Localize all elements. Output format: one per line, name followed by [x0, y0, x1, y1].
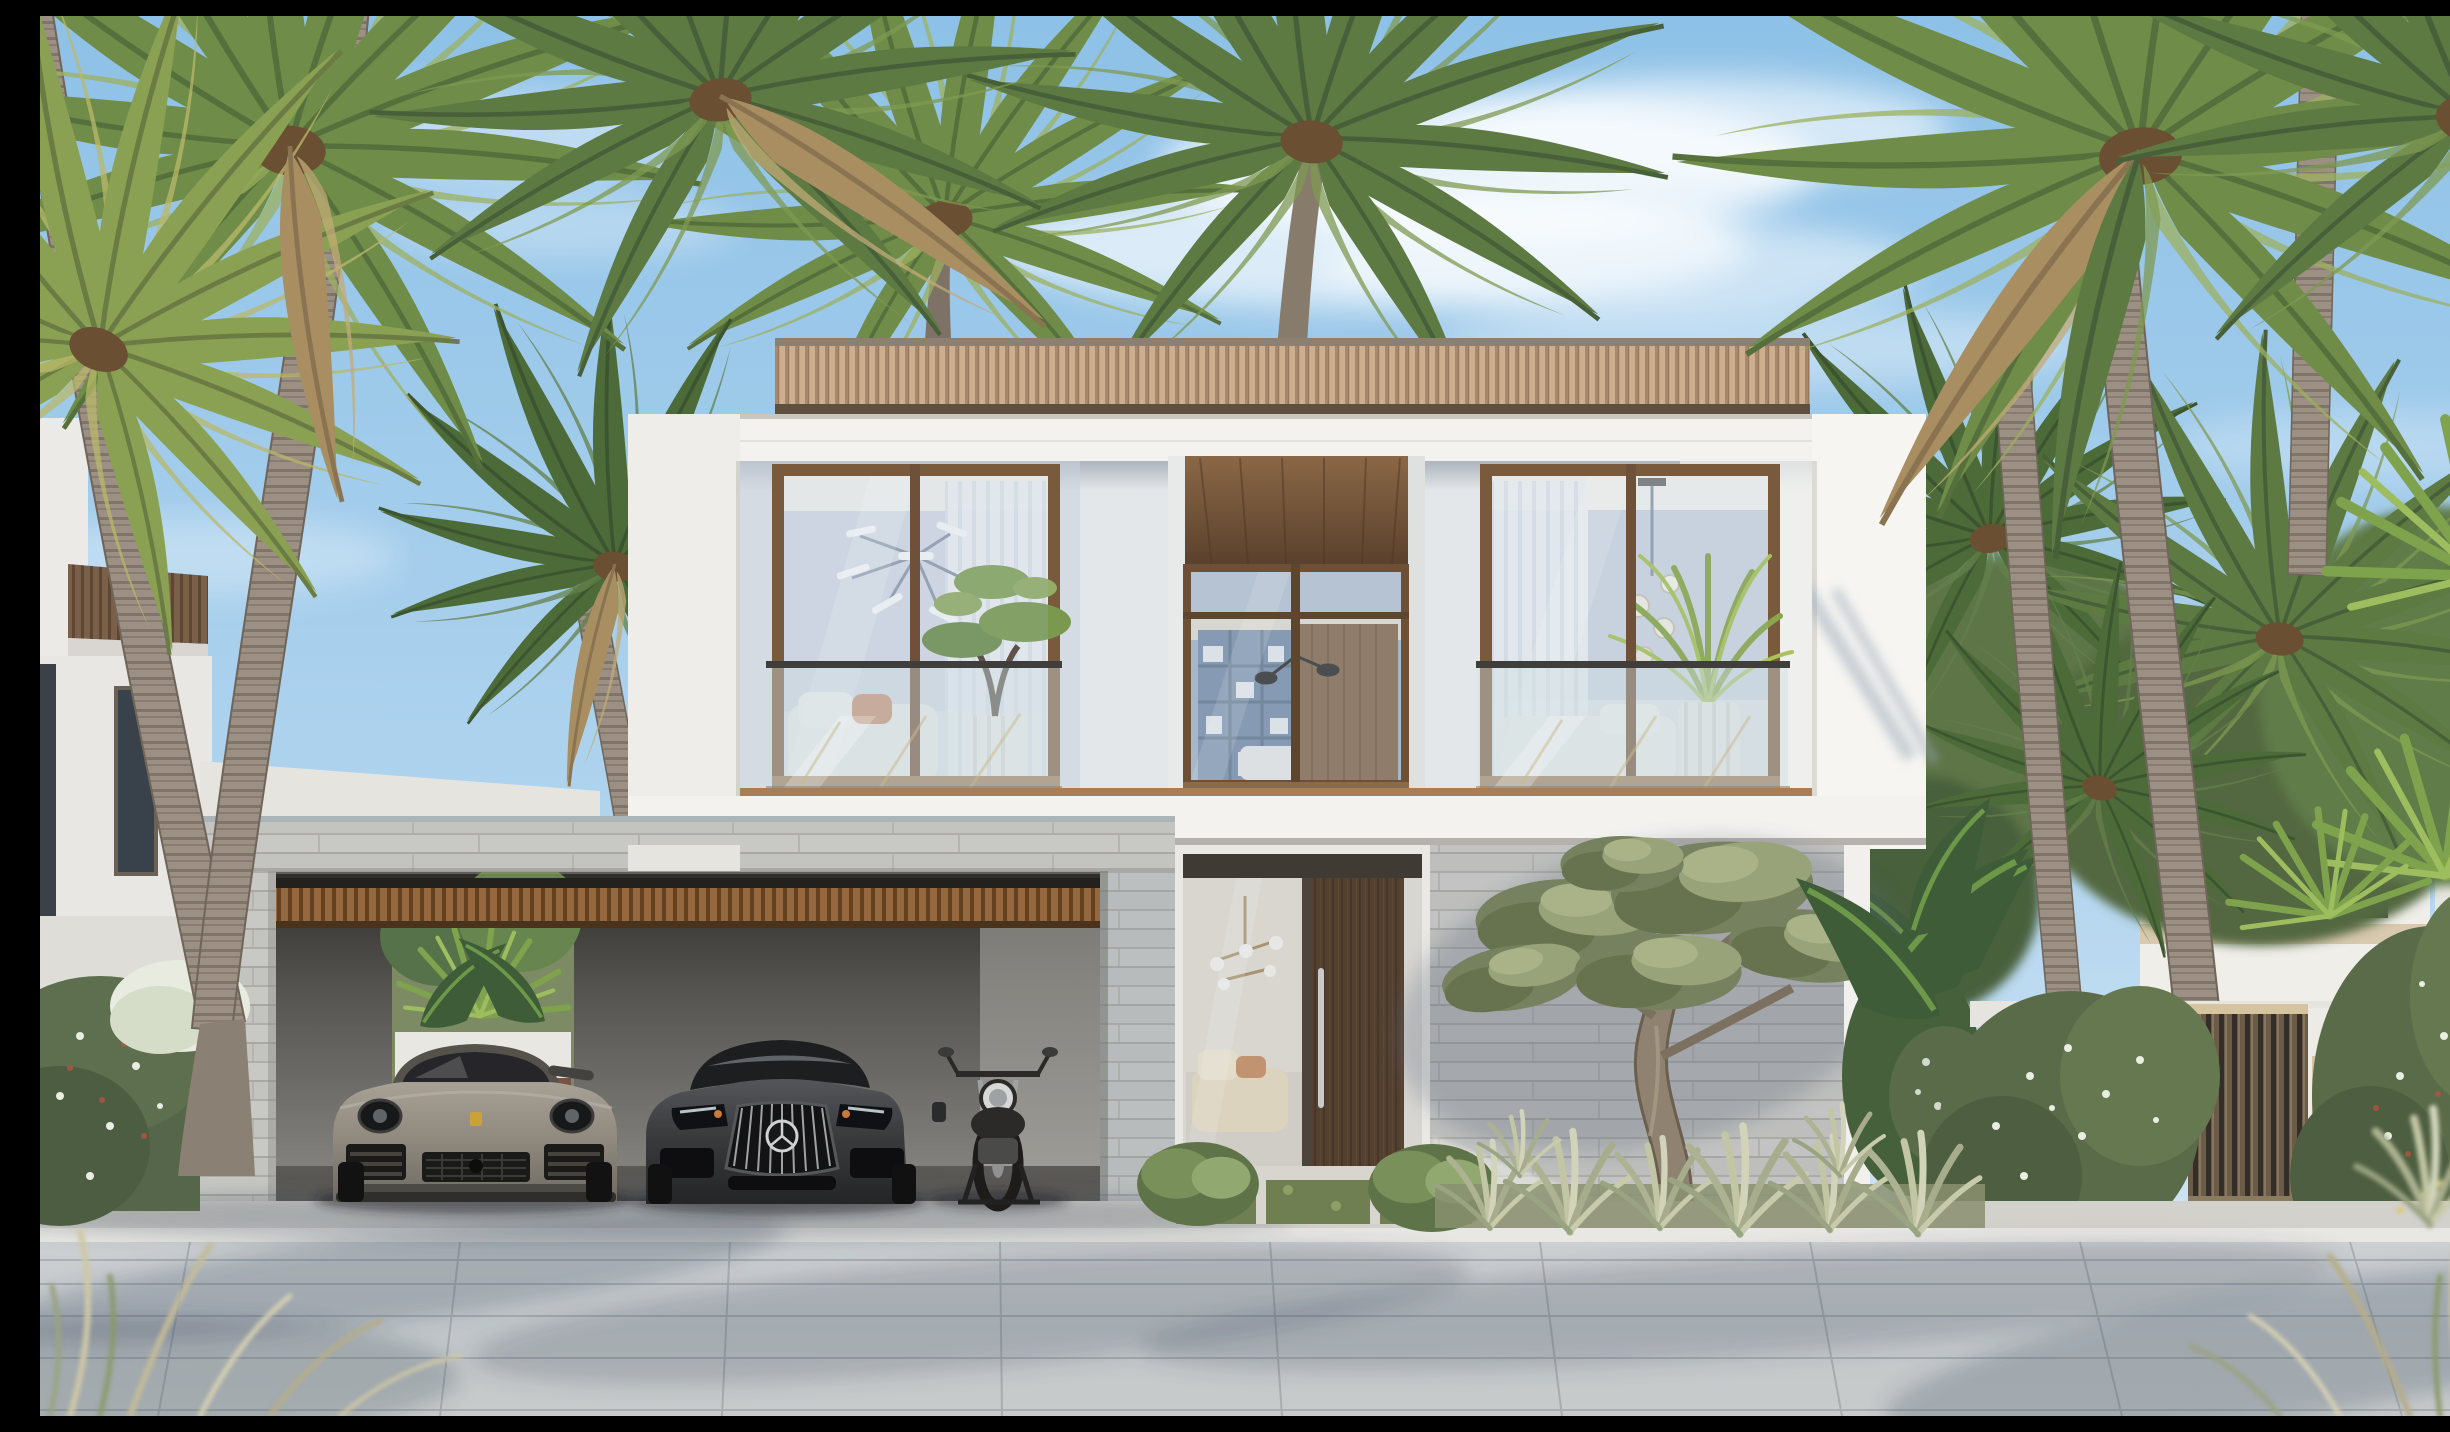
- entry-door-walnut: [1312, 878, 1404, 1170]
- entry-shrub-left: [1137, 1142, 1259, 1226]
- mercedes-grille: [726, 1103, 838, 1176]
- balcony-glass-door: [1183, 564, 1409, 788]
- entry-sidelight-glass: [1183, 878, 1307, 1170]
- neighbor-window-sliver: [40, 664, 56, 924]
- roof-fascia-timber-slats: [775, 338, 1810, 414]
- porsche-crest: [470, 1112, 482, 1126]
- carport-timber-ceiling: [275, 878, 1105, 928]
- mercedes-mirror: [932, 1102, 946, 1122]
- upper-pier-left: [628, 414, 740, 849]
- main-house: [628, 338, 1939, 849]
- door-handle: [1318, 968, 1324, 1108]
- villa-rendering: Photorealistic exterior rendering of a m…: [40, 16, 2450, 1416]
- balustrade-right: [1476, 661, 1790, 792]
- center-balcony: [1168, 456, 1425, 801]
- balustrade-left: [766, 661, 1062, 792]
- villa-rendering-canvas: Photorealistic exterior rendering of a m…: [40, 16, 2450, 1416]
